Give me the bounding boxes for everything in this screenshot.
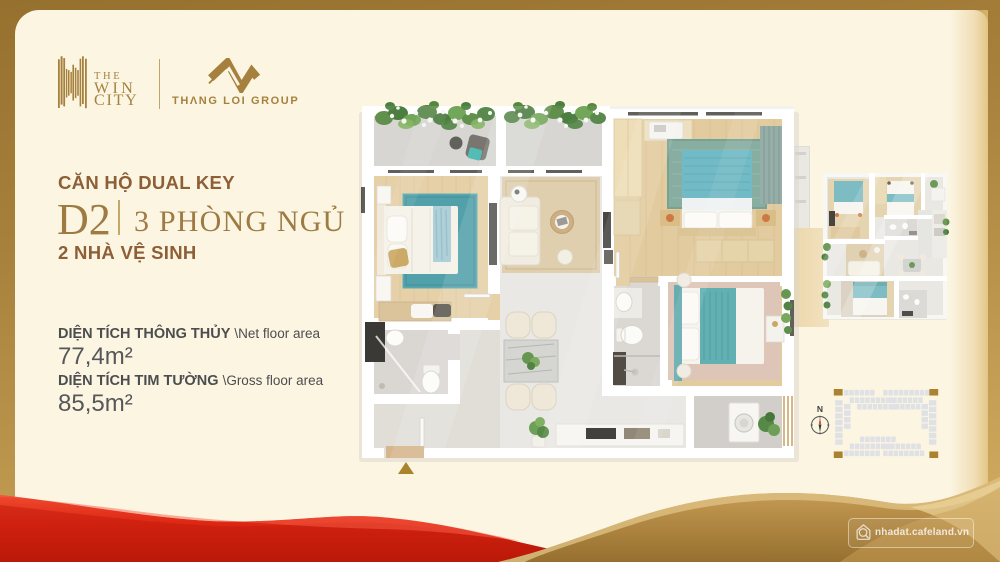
svg-text:N: N <box>817 404 823 414</box>
